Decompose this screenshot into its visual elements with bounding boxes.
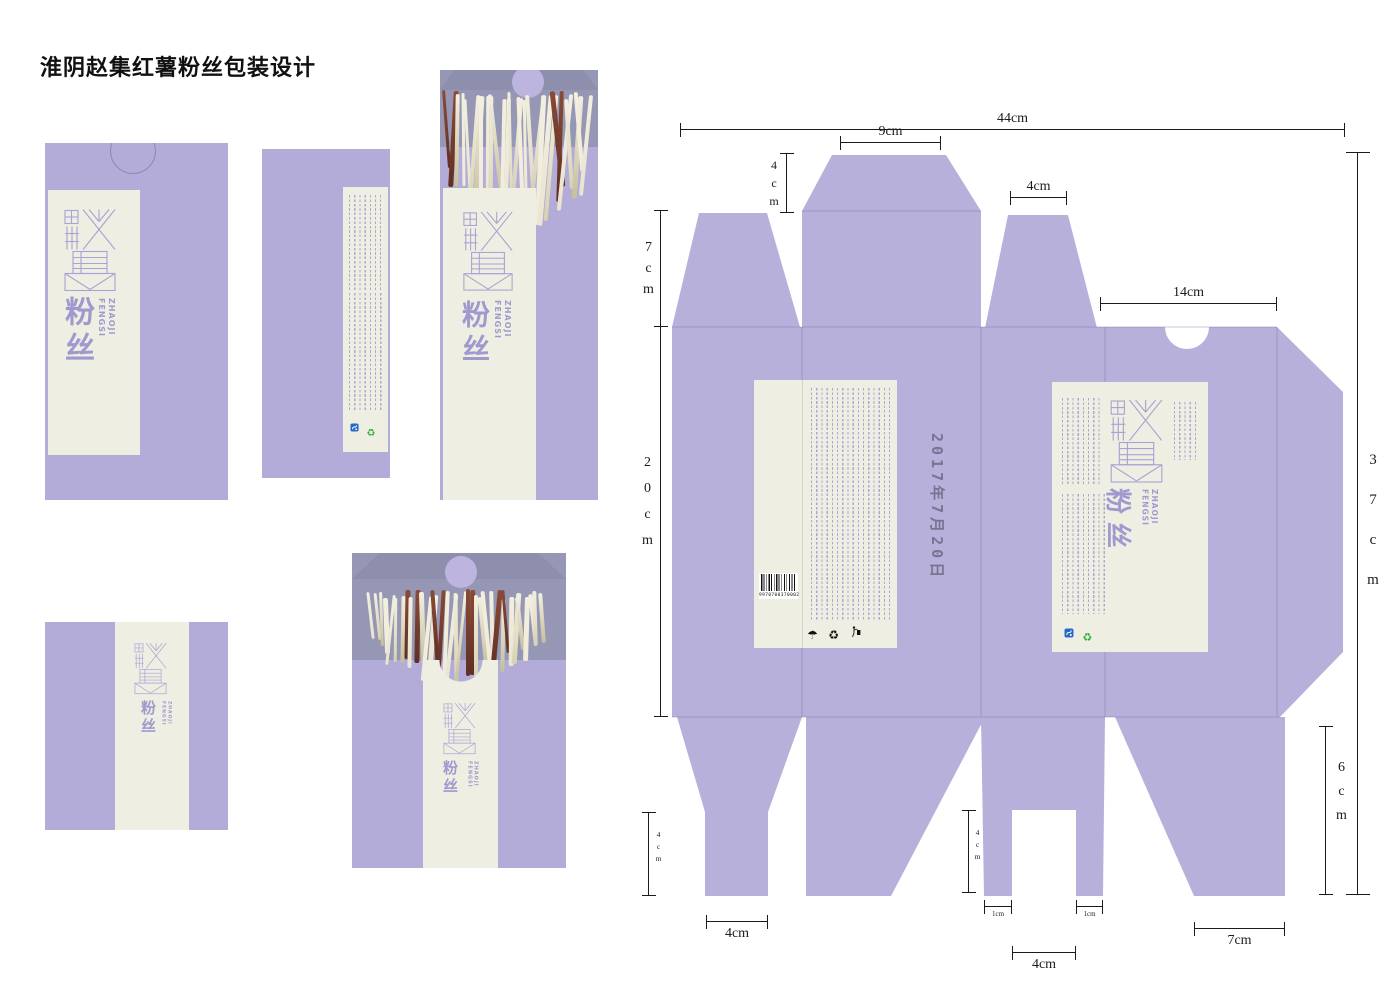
certification-icons: ♻ (350, 423, 375, 441)
dieline-lid-flap (802, 155, 981, 327)
product-name-vertical: 粉丝 (460, 300, 488, 368)
packaging-care-icons: ☂ ♻ (807, 626, 861, 644)
label-divider (802, 380, 803, 648)
dim-label-4cm-flap: 4cm (1010, 179, 1067, 195)
noodle-stick (394, 598, 398, 662)
dieline-top-small-flap (985, 215, 1097, 328)
dim-total-width: 44cm (680, 129, 1345, 130)
food-safety-blue-icon (350, 423, 359, 432)
zhaoji-seal-logo (63, 207, 117, 293)
zhaoji-seal-logo (1109, 398, 1164, 484)
barcode-bars (761, 574, 796, 591)
keep-dry-umbrella-icon: ☂ (807, 629, 818, 641)
dim-label-7cm: 7cm (640, 240, 656, 303)
dim-top-small-flap-width: 4cm (1010, 197, 1067, 198)
green-recycle-icon: ♻ (366, 429, 375, 439)
zhaoji-seal-logo (441, 702, 478, 755)
recycle-icon: ♻ (828, 629, 839, 641)
product-name-vertical: 粉丝 (140, 700, 155, 736)
product-name-vertical: 粉丝 (61, 296, 91, 368)
closure-tab (445, 556, 477, 588)
brand-latin-vertical: ZHAOJI FENGSI (160, 701, 171, 726)
brand-latin-vertical: ZHAOJI FENGSI (466, 761, 479, 788)
green-recycle-icon: ♻ (1082, 632, 1092, 643)
brand-latin-line2: FENGSI (492, 300, 502, 339)
dieline-drawing (630, 140, 1350, 910)
brand-latin-rotated: ZHAOJI FENGSI (1140, 489, 1159, 526)
side-label: ♻ (343, 187, 388, 452)
dim-top-left-flap-height (660, 211, 661, 327)
fine-print-block (811, 388, 891, 620)
brand-latin-line1: ZHAOJI (106, 298, 116, 337)
product-name-vertical: 粉丝 (442, 760, 457, 796)
dim-bottom-left-stem-width: 4cm (706, 921, 768, 922)
barcode-digits: 9970700370002 (759, 593, 798, 598)
brand-latin-line2: FENGSI (96, 298, 106, 337)
product-name-rotated: 粉丝 (1104, 488, 1130, 556)
dim-bottom-mid-stem-right: 1cm (1076, 906, 1103, 907)
dim-body-height (660, 327, 661, 717)
thumb-notch-outline (110, 143, 156, 174)
brand-latin-vertical: ZHAOJI FENGSI (492, 300, 512, 339)
noodle-stick (408, 597, 413, 668)
dieline-top-left-flap (672, 213, 800, 327)
brand-latin-line1: ZHAOJI (166, 701, 172, 726)
dieline-bottom-middle-flap (981, 717, 1105, 896)
brand-latin-line2: FENGSI (160, 701, 166, 726)
fine-print-block (349, 293, 383, 411)
dim-label-44cm: 44cm (680, 111, 1345, 127)
date-stamp-text: 2017年7月20日 (927, 433, 948, 581)
zhaoji-seal-logo (461, 210, 515, 292)
dim-label-1cm-left: 1cm (984, 910, 1012, 918)
brand-latin-vertical: ZHAOJI FENGSI (96, 298, 116, 337)
fine-print-block (1062, 398, 1102, 484)
front-label: 粉丝 ZHAOJI FENGSI (443, 188, 536, 500)
dieline-front-label: 粉丝 ZHAOJI FENGSI ♻ (1052, 382, 1208, 652)
barcode: 9970700370002 (759, 573, 798, 599)
dim-bottom-mid-stem-left: 1cm (984, 906, 1012, 907)
packaging-design-sheet: 淮阴赵集红薯粉丝包装设计 粉丝 ZHAOJI FENGSI ♻ (0, 0, 1400, 990)
dim-label-1cm-right: 1cm (1076, 910, 1103, 918)
certification-icons: ♻ (1064, 628, 1092, 646)
top-face-band: 粉丝 ZHAOJI FENGSI (115, 622, 189, 830)
dim-label-7cm-below: 7cm (1194, 933, 1285, 949)
zhaoji-seal-logo (133, 642, 168, 695)
brand-latin-line1: ZHAOJI (1149, 489, 1158, 526)
mockup-side-view: ♻ (262, 149, 390, 478)
front-label: 粉丝 ZHAOJI FENGSI (48, 190, 140, 455)
dim-bottom-right-flap-width: 7cm (1194, 928, 1285, 929)
dim-front-panel-top-width: 14cm (1100, 303, 1277, 304)
dim-label-37cm: 37cm (1364, 452, 1381, 612)
dim-label-20cm: 20cm (639, 455, 655, 559)
dim-lid-top-width: 9cm (840, 142, 941, 143)
dieline-bottom-right-flap (1115, 717, 1285, 896)
dim-label-4cm-small-left: 4cm (654, 830, 663, 866)
brand-latin-line1: ZHAOJI (472, 761, 478, 788)
design-title: 淮阴赵集红薯粉丝包装设计 (40, 50, 316, 82)
tidy-man-icon (849, 626, 861, 638)
dim-bottom-mid-stem-height (968, 810, 969, 893)
noodle-stick (538, 593, 546, 643)
fine-print-block (1062, 494, 1106, 614)
fine-print-block (1174, 402, 1200, 460)
brand-latin-line1: ZHAOJI (502, 300, 512, 339)
dieline-bottom-left-flap (677, 717, 802, 896)
dim-label-6cm: 6cm (1333, 760, 1349, 832)
noodle-stick (532, 590, 538, 645)
mockup-open-box-front: 粉丝 ZHAOJI FENGSI (352, 553, 566, 868)
dim-lid-top-height (786, 153, 787, 213)
dim-label-4cm-below: 4cm (706, 926, 768, 942)
dim-bottom-left-stem-height (648, 812, 649, 896)
dim-label-4cm-lid: 4cm (766, 158, 781, 212)
mockup-open-box-top: 粉丝 ZHAOJI FENGSI (440, 70, 598, 500)
dim-label-14cm: 14cm (1100, 285, 1277, 301)
front-band-label: 粉丝 ZHAOJI FENGSI (423, 660, 498, 868)
brand-latin-line2: FENGSI (466, 761, 472, 788)
noodle-stick (454, 94, 459, 187)
brand-latin-line2: FENGSI (1140, 489, 1149, 526)
dim-label-4cm-small-mid: 4cm (973, 828, 982, 864)
fine-print-block (349, 195, 381, 291)
dim-bottom-right-flap-height (1325, 726, 1326, 895)
mockup-top-face: 粉丝 ZHAOJI FENGSI (45, 622, 228, 830)
dim-label-4cm-gap: 4cm (1012, 957, 1076, 973)
dieline-bottom-flap-2 (806, 717, 985, 896)
dim-bottom-mid-gap: 4cm (1012, 952, 1076, 953)
dim-label-9cm: 9cm (840, 124, 941, 140)
dieline-back-label: 9970700370002 ☂ ♻ (754, 380, 897, 648)
food-safety-blue-icon (1064, 628, 1074, 638)
mockup-front-view: 粉丝 ZHAOJI FENGSI (45, 143, 228, 500)
dim-total-height (1357, 152, 1358, 895)
noodle-stick (523, 597, 530, 661)
